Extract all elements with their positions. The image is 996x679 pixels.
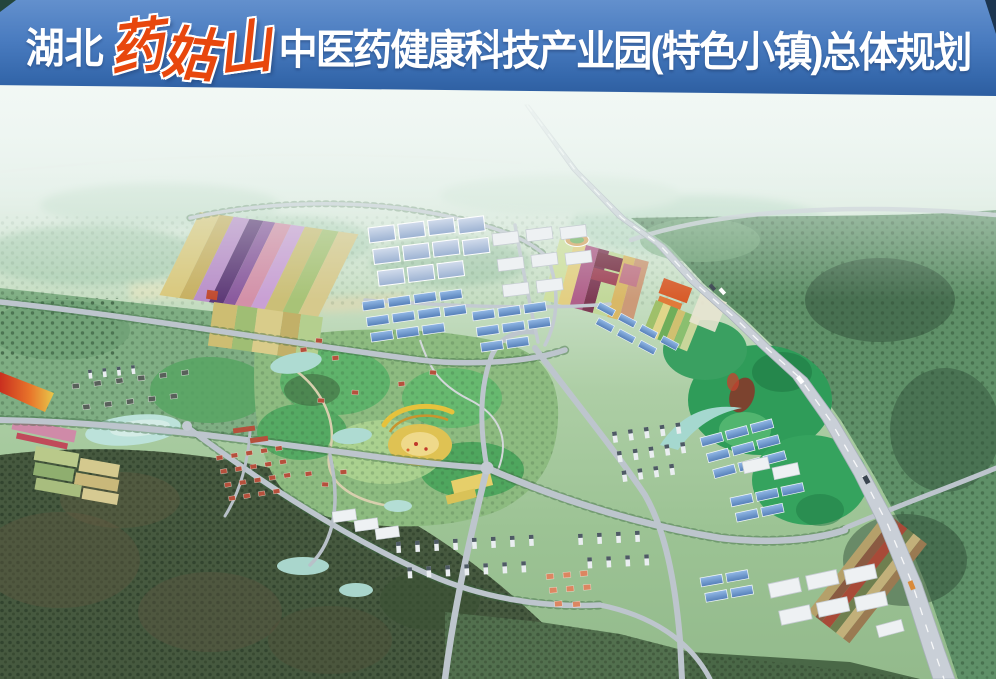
title-banner: 湖北 药 姑 山 中医药健康科技产业园(特色小镇)总体规划 xyxy=(0,0,996,99)
title-mountain-name: 药 姑 山 xyxy=(109,3,271,88)
aerial-rendering xyxy=(0,80,996,679)
title-region-prefix: 湖北 xyxy=(25,14,103,75)
mountain-char-1: 药 xyxy=(105,0,168,87)
masterplan-poster: 湖北 药 姑 山 中医药健康科技产业园(特色小镇)总体规划 xyxy=(0,0,996,679)
mountain-char-2: 姑 xyxy=(159,5,220,94)
mountain-char-3: 山 xyxy=(212,0,276,89)
title-main-text: 中医药健康科技产业园(特色小镇)总体规划 xyxy=(278,15,970,79)
masterplan-scene xyxy=(0,80,996,679)
poster-title: 湖北 药 姑 山 中医药健康科技产业园(特色小镇)总体规划 xyxy=(25,2,970,90)
central-junction xyxy=(481,462,494,475)
